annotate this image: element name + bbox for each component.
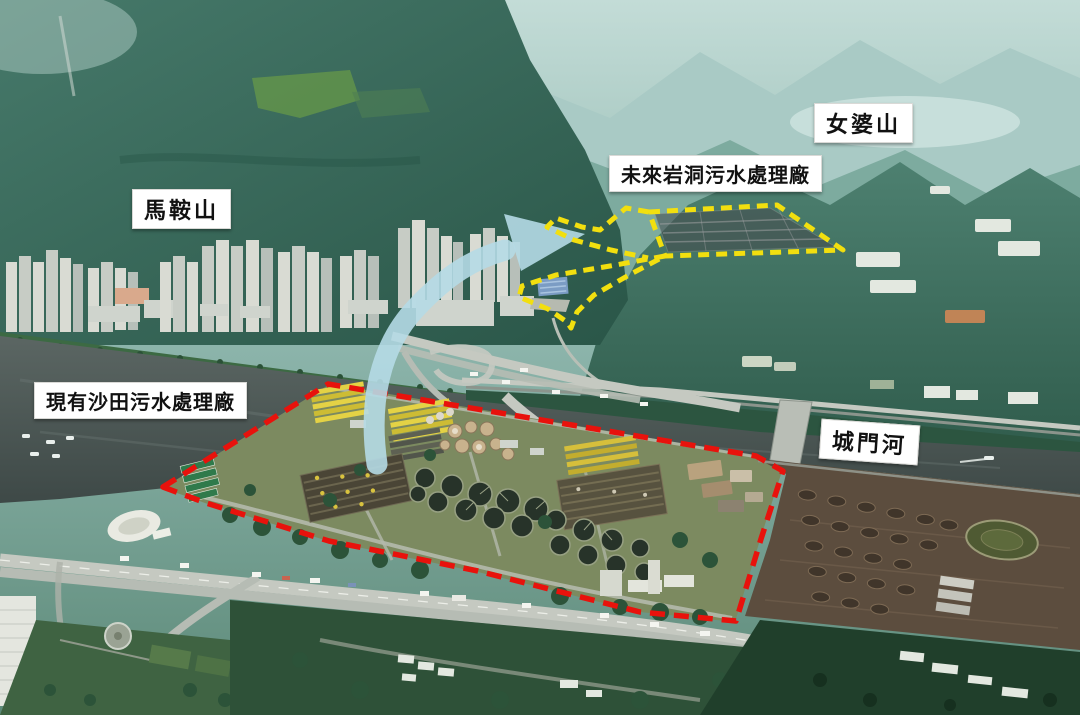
aerial-photo-scene [0, 0, 1080, 715]
portal-building [537, 277, 568, 297]
label-nui-po-shan: 女婆山 [814, 103, 913, 143]
annotated-aerial-photo: 馬鞍山 女婆山 未來岩洞污水處理廠 現有沙田污水處理廠 城門河 [0, 0, 1080, 715]
label-future-cavern-stw: 未來岩洞污水處理廠 [609, 155, 822, 192]
orange-roof-house [945, 310, 985, 323]
label-ma-on-shan: 馬鞍山 [132, 189, 231, 229]
label-shing-mun-river: 城門河 [819, 419, 921, 466]
label-existing-shatin-stw: 現有沙田污水處理廠 [34, 382, 247, 419]
